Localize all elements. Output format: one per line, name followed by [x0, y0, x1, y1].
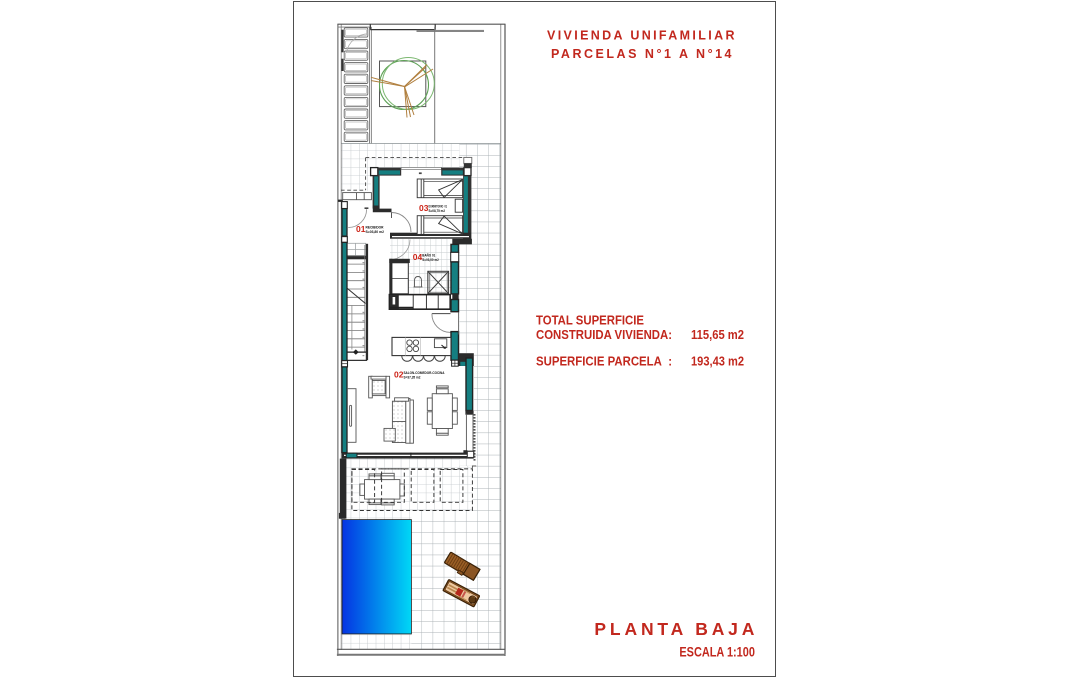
- svg-text:01: 01: [356, 224, 366, 234]
- svg-text:115,65 m2: 115,65 m2: [691, 327, 744, 342]
- svg-text:S=03,80 m2: S=03,80 m2: [366, 229, 385, 234]
- svg-text:SUPERFICIE PARCELA :: SUPERFICIE PARCELA :: [536, 354, 672, 369]
- svg-text:CONSTRUIDA VIVIENDA:: CONSTRUIDA VIVIENDA:: [536, 327, 672, 342]
- svg-text:S=37,35 m2: S=37,35 m2: [404, 375, 422, 380]
- svg-text:TOTAL SUPERFICIE: TOTAL SUPERFICIE: [536, 313, 644, 328]
- svg-text:02: 02: [394, 370, 404, 380]
- svg-text:04: 04: [413, 252, 423, 262]
- svg-text:S=08,75 m2: S=08,75 m2: [429, 208, 446, 213]
- svg-text:193,43 m2: 193,43 m2: [691, 354, 744, 369]
- svg-text:03: 03: [419, 203, 429, 213]
- svg-text:S=03,00 m2: S=03,00 m2: [422, 257, 439, 262]
- svg-text:PARCELAS N°1 A N°14: PARCELAS N°1 A N°14: [551, 47, 732, 61]
- svg-text:ESCALA 1:100: ESCALA 1:100: [679, 645, 755, 660]
- svg-text:PLANTA BAJA: PLANTA BAJA: [594, 619, 754, 639]
